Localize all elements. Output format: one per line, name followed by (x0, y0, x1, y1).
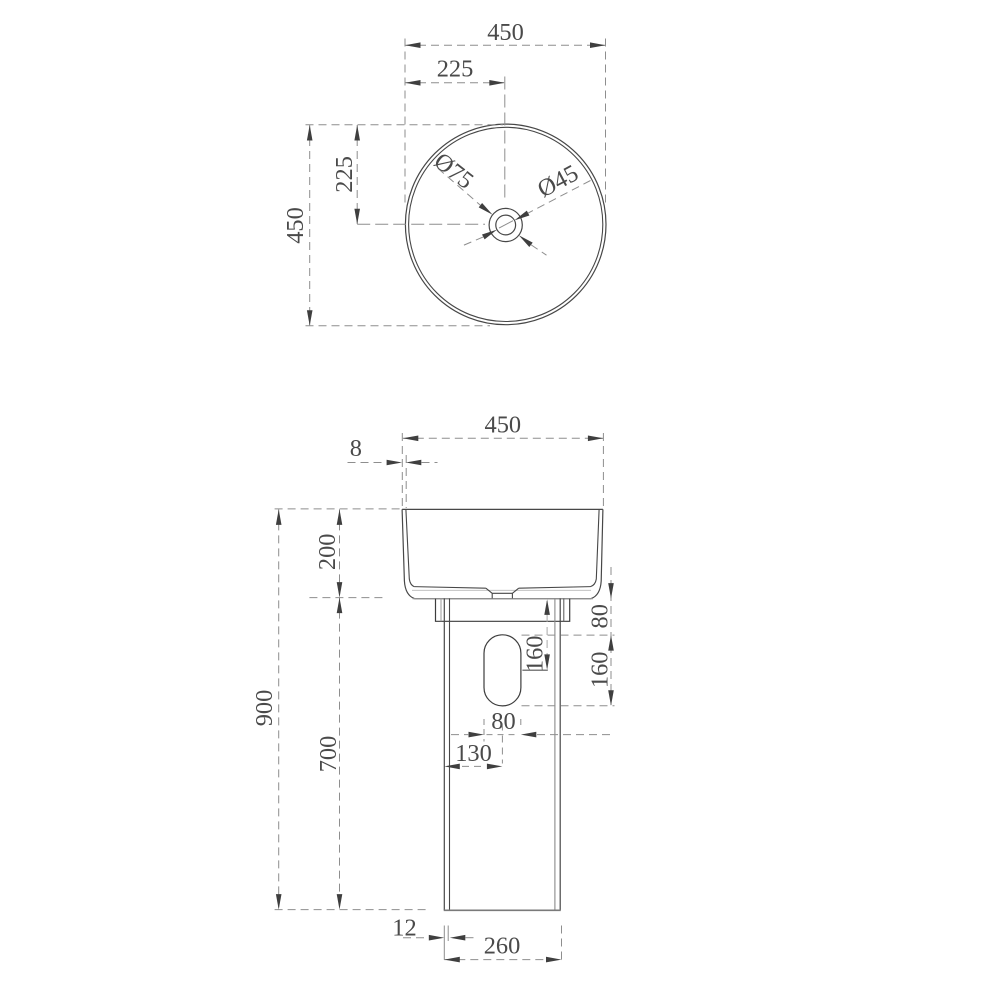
svg-text:900: 900 (251, 690, 278, 727)
svg-text:225: 225 (331, 156, 358, 193)
svg-text:260: 260 (484, 933, 521, 960)
svg-text:12: 12 (392, 914, 416, 941)
svg-text:80: 80 (491, 708, 515, 735)
svg-text:700: 700 (315, 736, 342, 773)
svg-text:200: 200 (314, 534, 341, 571)
svg-text:450: 450 (487, 19, 524, 46)
svg-text:160: 160 (586, 652, 613, 689)
svg-text:130: 130 (455, 740, 492, 767)
svg-text:225: 225 (437, 55, 474, 82)
svg-text:80: 80 (586, 604, 613, 628)
svg-text:450: 450 (485, 411, 522, 438)
svg-text:160: 160 (521, 636, 548, 673)
svg-text:450: 450 (282, 207, 309, 244)
svg-text:8: 8 (350, 435, 362, 462)
